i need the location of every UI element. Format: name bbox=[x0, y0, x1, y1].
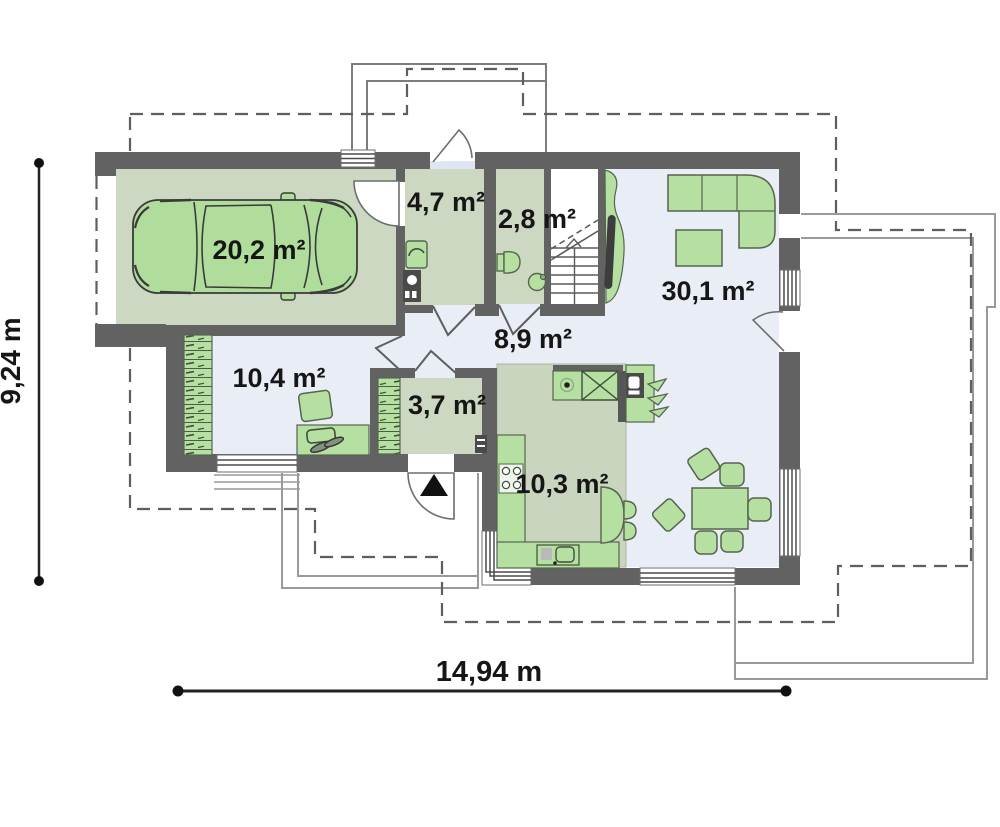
svg-text:9,24 m: 9,24 m bbox=[0, 317, 26, 404]
svg-text:30,1 m²: 30,1 m² bbox=[661, 276, 754, 306]
svg-text:4,7 m²: 4,7 m² bbox=[407, 187, 485, 217]
svg-text:10,3 m²: 10,3 m² bbox=[515, 469, 608, 499]
svg-text:20,2 m²: 20,2 m² bbox=[212, 235, 305, 265]
svg-text:8,9 m²: 8,9 m² bbox=[494, 324, 572, 354]
svg-text:3,7 m²: 3,7 m² bbox=[408, 390, 486, 420]
svg-text:14,94 m: 14,94 m bbox=[436, 656, 542, 688]
svg-text:2,8 m²: 2,8 m² bbox=[498, 204, 576, 234]
svg-text:10,4 m²: 10,4 m² bbox=[232, 363, 325, 393]
